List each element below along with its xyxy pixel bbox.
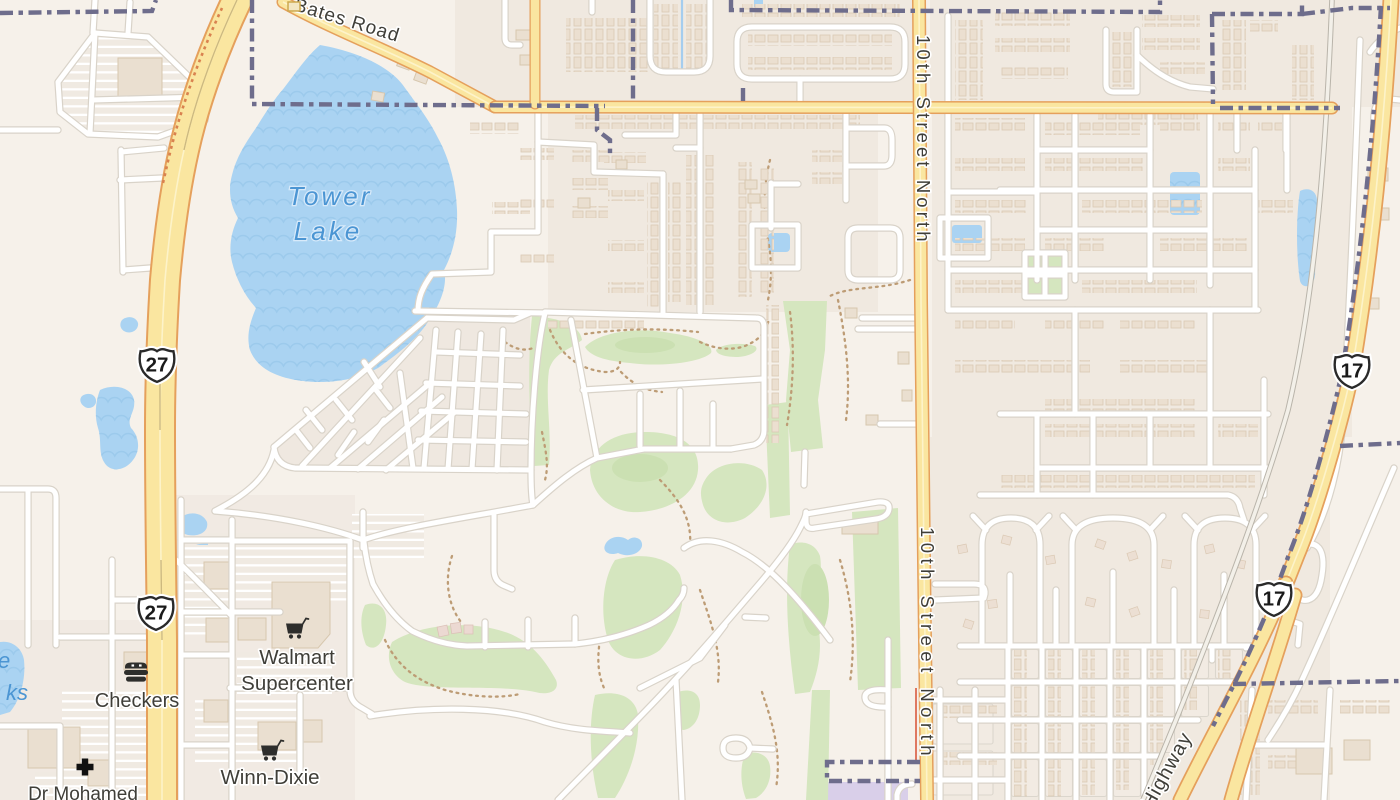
svg-text:ks: ks (6, 680, 28, 705)
svg-text:Supercenter: Supercenter (241, 672, 353, 695)
svg-text:10th Street North: 10th Street North (917, 527, 938, 757)
svg-text:17: 17 (1263, 588, 1286, 611)
svg-text:17: 17 (1341, 360, 1364, 383)
svg-text:Winn-Dixie: Winn-Dixie (220, 766, 319, 789)
svg-text:27: 27 (145, 602, 168, 625)
svg-text:Dr Mohamed: Dr Mohamed (28, 784, 138, 800)
svg-text:Checkers: Checkers (95, 690, 179, 712)
svg-text:27: 27 (146, 354, 169, 377)
svg-text:10th Street North: 10th Street North (913, 35, 934, 243)
svg-text:Walmart: Walmart (259, 646, 335, 669)
svg-text:Tower: Tower (288, 181, 373, 211)
svg-text:e: e (0, 648, 10, 673)
svg-text:Lake: Lake (294, 216, 362, 246)
